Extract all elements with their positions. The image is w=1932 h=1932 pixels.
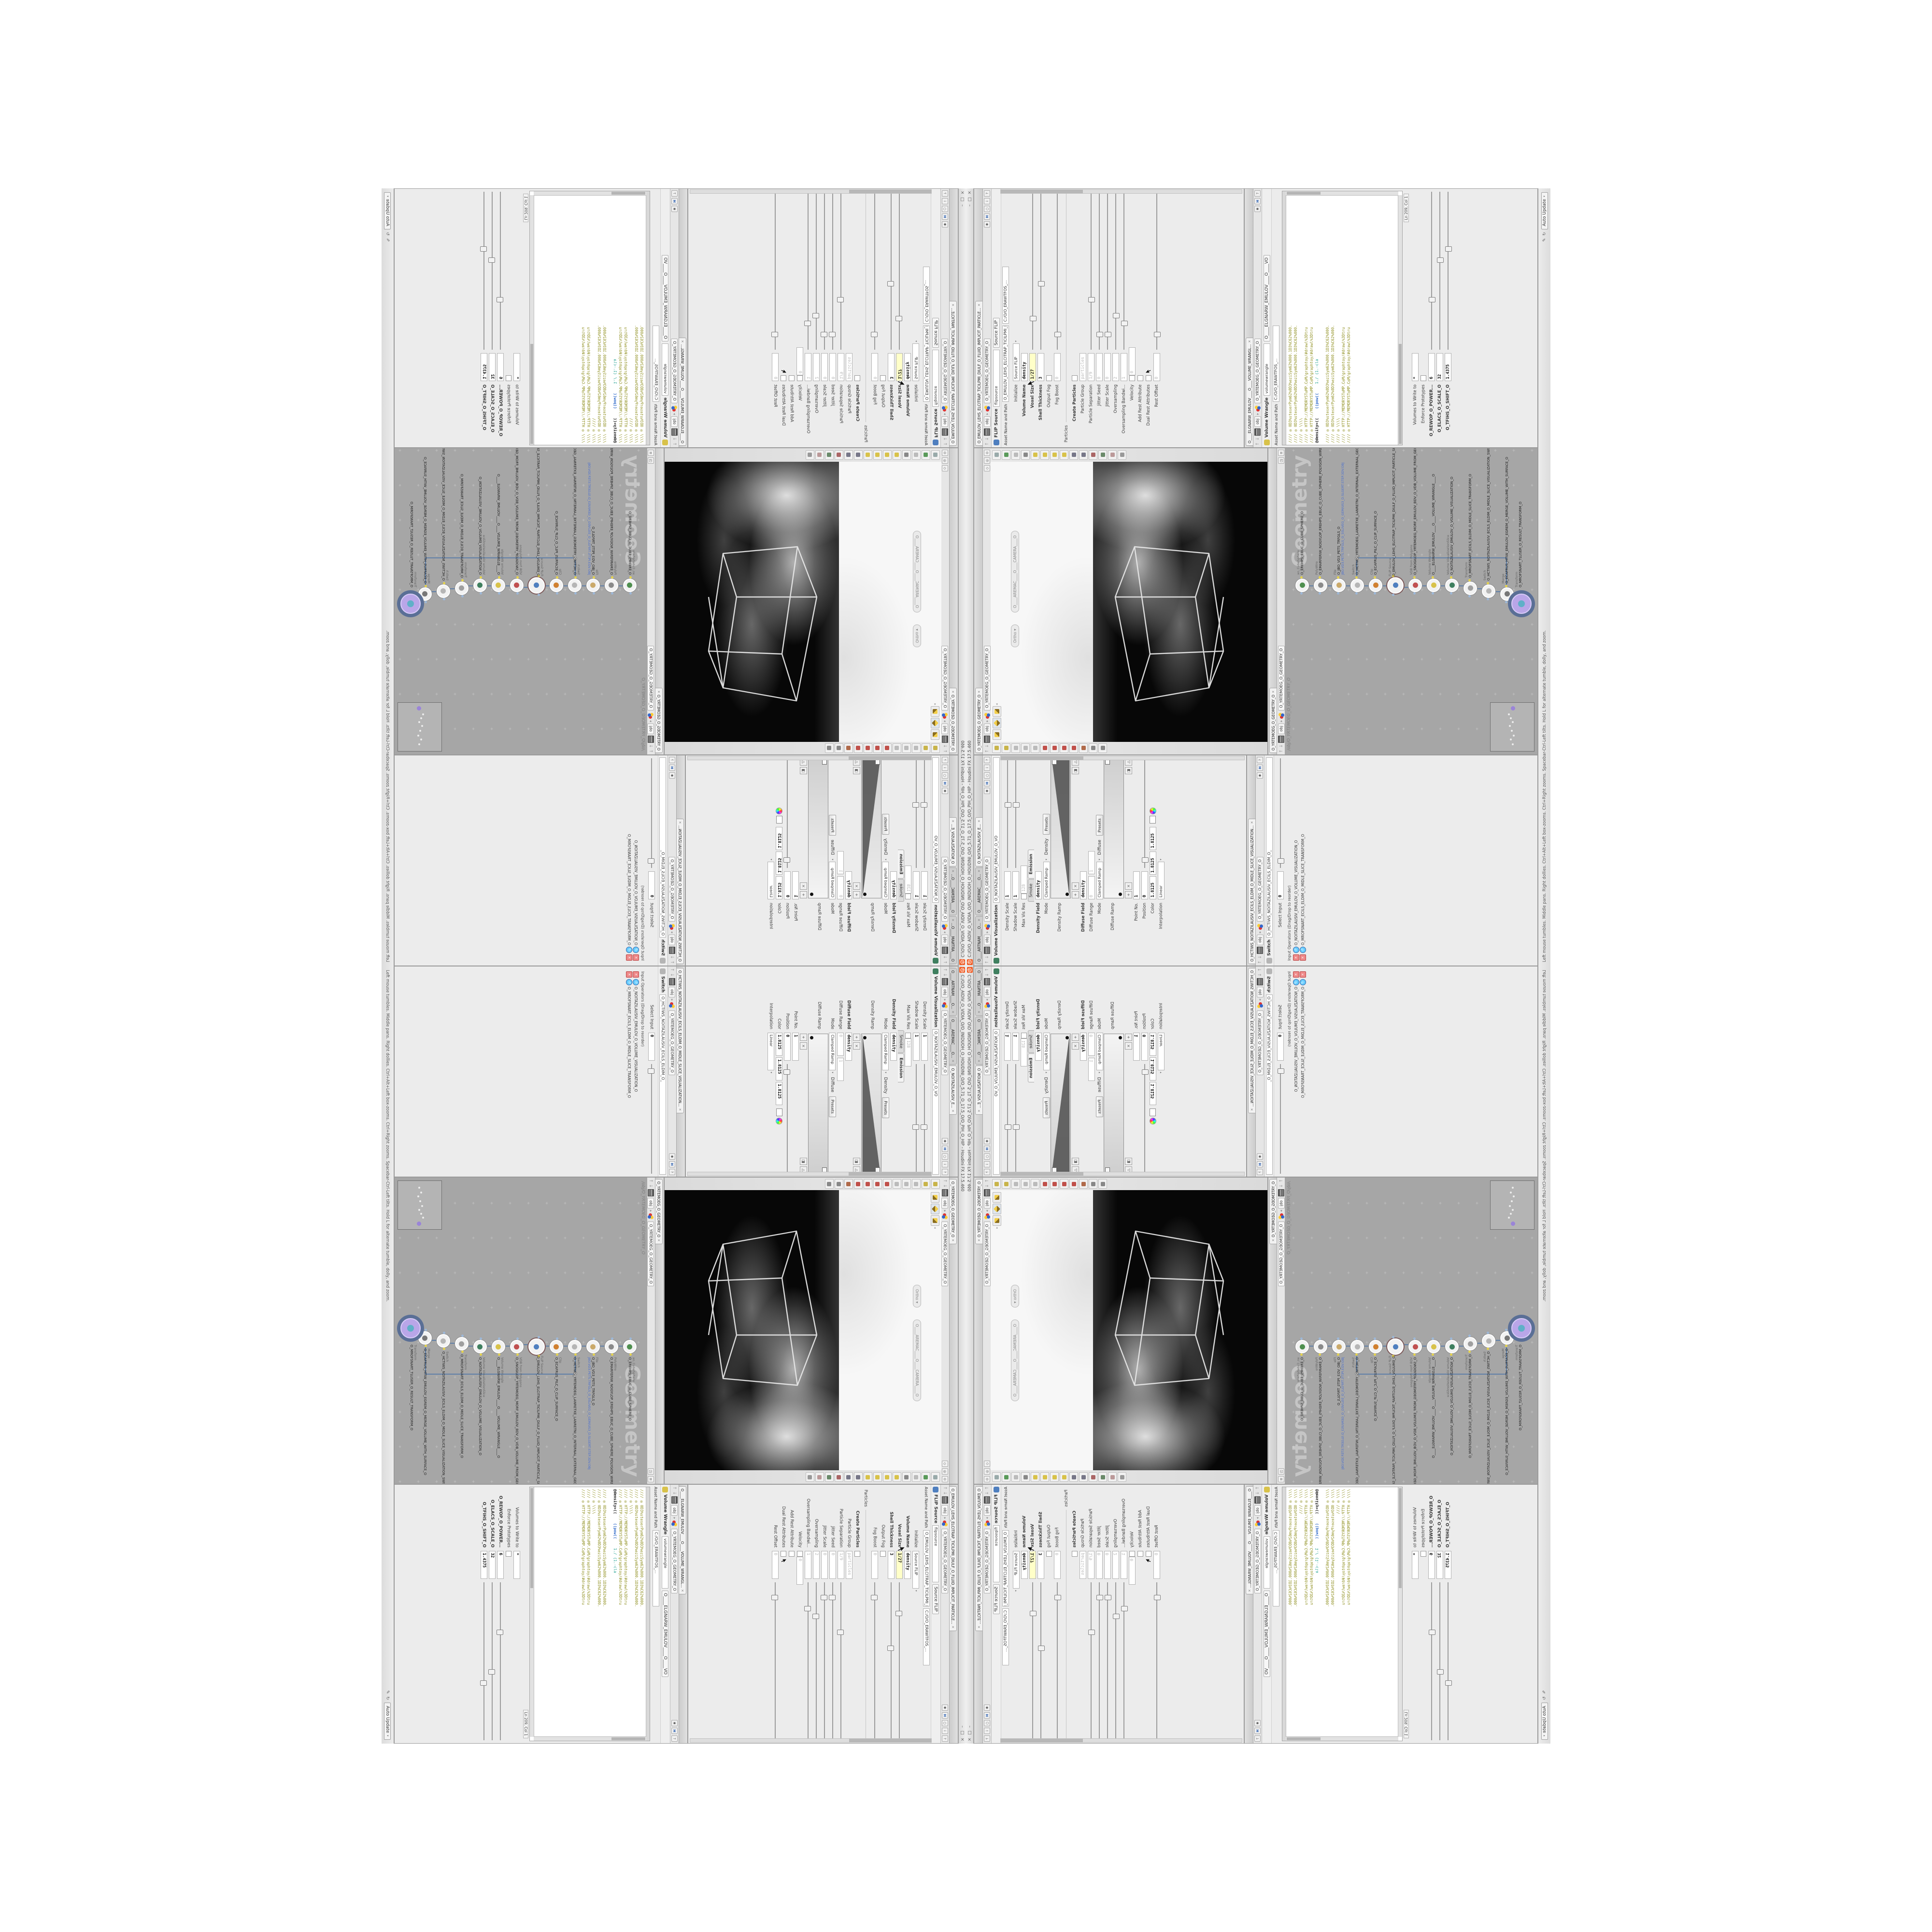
slider-handle[interactable] — [1429, 1630, 1435, 1635]
asset-path-field[interactable]: C:/O/O_ERAWTFOS_... — [923, 267, 930, 324]
path-context-chip[interactable]: obj — [1254, 416, 1261, 427]
gear-icon[interactable]: ✱ — [1254, 206, 1261, 212]
recook-icon[interactable]: ↻ — [1542, 232, 1547, 236]
param-value-field[interactable]: 0 — [772, 353, 779, 381]
asset-name-field[interactable]: O_EMULOV_LEHS_ELCITRAP_TICILPMI_DI — [923, 1530, 930, 1606]
path-node-chip[interactable]: O_YRTEMOEG_O_GEOMETRY_O — [984, 1529, 991, 1593]
pane-scrollbar[interactable] — [687, 756, 932, 760]
slider-handle[interactable] — [1113, 1614, 1120, 1619]
slider-handle[interactable] — [1088, 1630, 1095, 1635]
tab-visualization[interactable]: O_NOITAZILAUSIV_E...× — [975, 1065, 982, 1114]
param-value-field[interactable]: 0 — [830, 1551, 837, 1579]
hand-tool-icon[interactable] — [1002, 1179, 1010, 1189]
param-slider[interactable] — [822, 192, 828, 350]
asset-path-field[interactable]: C:/O/O_ERAWTFOS_... — [1002, 1608, 1009, 1665]
network-canvas[interactable]: + + + + + + + + + + + + + + + + + + + + … — [395, 1178, 647, 1484]
dropdown-value[interactable]: Linear — [768, 1033, 775, 1070]
param-slider[interactable] — [498, 192, 504, 350]
ramp-point-handle[interactable] — [1065, 892, 1069, 896]
wand-tool-icon[interactable] — [1118, 1472, 1126, 1482]
network-canvas[interactable]: + + + + + + + + + + + + + + + + + + + + … — [395, 448, 647, 754]
tab-flip-source[interactable]: O_EMULOV_LEHS_ELCITRAP_TICILPMI_DIULF_O_… — [950, 1486, 957, 1631]
slider-handle[interactable] — [1437, 257, 1444, 263]
target-icon[interactable]: ◎ — [984, 1468, 990, 1475]
dropdown-value[interactable]: Clamped Ramp — [882, 1033, 889, 1070]
close-button[interactable]: × — [960, 191, 965, 195]
param-dropdown[interactable]: Clamped Ramp▾ — [1096, 859, 1103, 899]
slider-handle[interactable] — [805, 1606, 811, 1611]
snap-magnet-prim-icon[interactable] — [1060, 1179, 1068, 1189]
network-node[interactable]: VDB from PolygonsO_SNOGILOP_YRTEMOEG_MOR… — [1408, 579, 1422, 592]
add-point-icon[interactable]: + — [1125, 1034, 1132, 1041]
tab-scene-view[interactable]: O_YRTEMOEG_O_GEOMETRY_O× — [975, 688, 982, 753]
param-value-field[interactable]: 0 — [1096, 353, 1103, 381]
nav-up-icon[interactable]: ↑ — [943, 749, 948, 753]
param-slider[interactable] — [498, 1582, 504, 1740]
color-component-field[interactable]: 1.8125 — [776, 876, 783, 899]
target-icon[interactable]: ◎ — [942, 1468, 948, 1475]
color-component-field[interactable]: 1.8125 — [776, 852, 783, 875]
path-node-chip[interactable]: O_YRTEMOEG_O_GEOMETRY_O — [942, 646, 949, 710]
pin-icon[interactable]: ⊙ — [984, 450, 990, 456]
param-slider[interactable] — [490, 192, 496, 350]
checkbox[interactable] — [1072, 1551, 1078, 1557]
node-display-flag[interactable] — [1355, 576, 1358, 579]
slider-handle[interactable] — [813, 313, 820, 318]
info-icon[interactable]: i — [942, 765, 948, 771]
node-input-flag[interactable] — [1374, 1337, 1376, 1340]
param-value-field[interactable]: 6 — [1428, 353, 1435, 381]
network-node-selected[interactable]: TransformO_MROFSNART_TLUSER_O_RESULT_TRA… — [397, 1315, 424, 1342]
add-point-icon[interactable]: + — [1072, 891, 1079, 898]
delete-input-icon[interactable]: × — [626, 971, 633, 978]
nav-down-icon[interactable]: ↓ — [670, 973, 675, 977]
node-input-flag[interactable] — [611, 592, 613, 595]
param-value-field[interactable]: 1 — [1088, 851, 1095, 874]
nav-up-icon[interactable]: ↑ — [943, 442, 948, 446]
auto-update-selector[interactable]: Auto Update ▾ — [1541, 192, 1548, 229]
tab-close-icon[interactable]: × — [951, 919, 955, 922]
param-value-field[interactable]: 0 — [784, 871, 791, 899]
help-icon[interactable]: ? — [1254, 190, 1261, 197]
param-value-field[interactable]: 1 — [1004, 1033, 1011, 1061]
houdini-h-icon[interactable]: H — [1257, 765, 1263, 771]
minimize-button[interactable]: – — [967, 204, 972, 207]
point-light-icon[interactable] — [1050, 1472, 1059, 1482]
sun-light-icon[interactable] — [1040, 1472, 1049, 1482]
checkbox[interactable] — [506, 1551, 512, 1557]
slider-handle[interactable] — [838, 1630, 844, 1635]
path-context-chip[interactable]: obj — [1257, 935, 1264, 945]
param-value-field[interactable]: 0 — [1129, 1557, 1136, 1585]
tab-network-editor[interactable]: O_YRTEMOEG_O_GEOMETRY_O× — [655, 1179, 663, 1244]
select-arrow-icon[interactable] — [931, 743, 940, 753]
dome-light-icon[interactable] — [1031, 1472, 1039, 1482]
slider-handle[interactable] — [1429, 297, 1435, 302]
ramp-expand-icon[interactable]: ◨ — [1125, 767, 1132, 774]
pane-scrollbar[interactable] — [1000, 189, 1242, 194]
point-light-icon[interactable] — [873, 450, 882, 460]
param-slider[interactable] — [1121, 192, 1127, 350]
param-value-field[interactable]: 1/27 — [896, 353, 903, 381]
nav-down-icon[interactable]: ↓ — [670, 955, 675, 959]
slider-handle[interactable] — [1154, 1595, 1161, 1600]
tab-volume-wrangle[interactable]: O____ELGNARW_EMULOV____O____VOLUME_WRANG… — [679, 338, 686, 446]
node-name-field[interactable]: flipsource — [933, 1525, 939, 1582]
sky-bulb-icon[interactable] — [1060, 450, 1068, 460]
slider-handle[interactable] — [648, 1068, 655, 1074]
param-value-field[interactable]: 1 — [1012, 871, 1019, 899]
param-value-field[interactable]: 3 — [1037, 1551, 1044, 1579]
nav-down-icon[interactable]: ↓ — [985, 1492, 990, 1495]
tab-camera[interactable]: O____AREMAC____O...× — [975, 867, 982, 915]
input-operator-row[interactable]: × ↺ O_MROFSNART_ECILS_ELDIM_O_MIDLE_SLIC… — [626, 755, 633, 961]
node-input-flag[interactable] — [1468, 595, 1471, 597]
checkbox[interactable] — [855, 1551, 861, 1557]
param-value-field[interactable]: particles — [846, 353, 853, 381]
sphere-toggle-icon[interactable] — [902, 1472, 911, 1482]
slider-handle[interactable] — [1005, 1124, 1011, 1130]
reorder-input-icon[interactable]: ↺ — [1293, 979, 1299, 985]
align-tool-icon[interactable] — [1079, 1179, 1088, 1189]
param-value-field[interactable]: 1 — [1088, 1058, 1095, 1081]
tab-smoke[interactable]: Smoke — [898, 1030, 904, 1053]
nav-down-icon[interactable]: ↓ — [943, 744, 948, 748]
delete-point-icon[interactable]: × — [1072, 1042, 1079, 1050]
slider-handle[interactable] — [1096, 1595, 1103, 1600]
param-value-field[interactable]: 0 — [872, 1551, 879, 1579]
path-node-chip[interactable]: O_YRTEMOEG_O_GEOMETRY_O — [648, 1222, 654, 1286]
param-value-field[interactable]: 1 — [1121, 353, 1127, 381]
node-input-flag[interactable] — [1413, 1337, 1416, 1340]
tab-close-icon[interactable]: × — [678, 1108, 682, 1111]
nav-up-icon[interactable]: ↑ — [1279, 1179, 1284, 1183]
slider-handle[interactable] — [1013, 1124, 1020, 1130]
param-slider[interactable] — [1113, 192, 1119, 350]
pane-expand-icon[interactable]: ◳ — [648, 457, 654, 464]
path-context-chip[interactable]: obj — [671, 1505, 678, 1516]
asset-path-field[interactable]: C:/O/O_ERAWTFOS_... — [653, 326, 659, 402]
param-dropdown[interactable]: Source FLIP▾ — [913, 341, 920, 381]
tab-network-editor[interactable]: O_YRTEMOEG_O_GEOMETRY_O× — [1269, 1179, 1277, 1244]
param-value-field[interactable]: 0 — [797, 1557, 804, 1585]
checkbox[interactable] — [1146, 375, 1151, 381]
param-value-field[interactable]: 0 — [1054, 353, 1061, 381]
checkbox[interactable] — [1421, 1551, 1426, 1557]
param-value-field[interactable]: 0 — [830, 353, 837, 381]
houdini-h-icon[interactable]: H — [671, 198, 678, 204]
checkbox[interactable] — [1021, 894, 1027, 899]
path-context-chip[interactable]: obj — [942, 416, 949, 427]
node-display-flag[interactable] — [1374, 1353, 1376, 1356]
network-node-selected[interactable]: TransformO_MROFSNART_TLUSER_O_RESULT_TRA… — [397, 590, 424, 617]
slider-handle[interactable] — [1121, 321, 1128, 326]
network-node[interactable]: TransformO_MROFSNART_ECILS_ELDIM_O_MIDLE… — [455, 1337, 469, 1350]
help-icon[interactable]: ? — [669, 1169, 675, 1175]
network-node[interactable]: VDB from PolygonsO_SNOGILOP_YRTEMOEG_MOR… — [510, 1340, 524, 1353]
node-input-flag[interactable] — [461, 595, 464, 597]
presets-button[interactable]: Presets — [1043, 1097, 1050, 1118]
flag-display-icon[interactable] — [815, 1472, 824, 1482]
close-button[interactable]: × — [960, 1737, 965, 1741]
param-value-field[interactable]: 0 — [1088, 876, 1095, 899]
node-display-flag[interactable] — [1450, 1353, 1452, 1356]
delete-input-icon[interactable]: × — [633, 954, 639, 961]
dropdown-value[interactable]: Linear — [1158, 1033, 1165, 1070]
code-editor-scrollbar-right[interactable] — [534, 1736, 646, 1741]
color-swatch[interactable] — [776, 816, 782, 824]
slider-handle[interactable] — [497, 1630, 504, 1635]
node-input-flag[interactable] — [516, 1337, 519, 1340]
search-icon[interactable]: ○ — [942, 206, 948, 212]
search-icon[interactable]: ○ — [942, 1153, 948, 1160]
param-dropdown[interactable]: Clamped Ramp▾ — [1043, 1033, 1050, 1073]
node-display-flag[interactable] — [480, 576, 482, 579]
nav-up-icon[interactable]: ↑ — [1255, 442, 1260, 446]
dome-light-icon[interactable] — [893, 450, 901, 460]
construction-plane-icon[interactable] — [835, 1179, 843, 1189]
floor-grid-icon[interactable] — [912, 1472, 921, 1482]
param-value-field[interactable]: 3 — [1037, 353, 1044, 381]
slider-handle[interactable] — [1005, 802, 1011, 808]
viewport-render-area[interactable]: ◂ Ortho ▾ O____AREMAC____O____CAMERA____… — [665, 462, 941, 742]
node-name-field[interactable]: flipsource — [993, 1525, 1000, 1582]
slider-handle[interactable] — [821, 1595, 828, 1600]
param-slider[interactable] — [1429, 192, 1435, 350]
slider-handle[interactable] — [1142, 1069, 1149, 1075]
param-value-field[interactable]: 1 — [1012, 1033, 1019, 1061]
param-slider[interactable] — [1154, 192, 1160, 350]
select-arrow-icon[interactable] — [992, 1179, 1001, 1189]
tab-close-icon[interactable]: × — [951, 1060, 955, 1063]
pin-icon[interactable]: ⊙ — [942, 450, 948, 456]
node-input-flag[interactable] — [1392, 1336, 1394, 1338]
slider-handle[interactable] — [1054, 332, 1061, 337]
select-arrow-icon[interactable] — [992, 743, 1001, 753]
floor-grid-icon[interactable] — [1011, 450, 1020, 460]
path-node-chip[interactable]: O_YRTEMOEG_O_GEOMETRY_O — [648, 646, 654, 710]
color-wheel-icon[interactable] — [1150, 808, 1156, 814]
node-name-field[interactable]: volumewrangle — [1264, 343, 1270, 396]
ramp-widget[interactable]: +×◨△ — [1051, 758, 1079, 898]
nav-down-icon[interactable]: ↓ — [1255, 437, 1260, 441]
slider-handle[interactable] — [497, 297, 504, 302]
asset-name-field[interactable]: O_EMULOV_LEHS_ELCITRAP_TICILPMI_DI — [923, 326, 930, 402]
node-display-flag[interactable] — [629, 576, 632, 579]
gear-icon[interactable]: ✱ — [671, 1720, 678, 1726]
dropdown-value[interactable]: Source FLIP — [1013, 343, 1020, 381]
search-icon[interactable]: ○ — [984, 1720, 990, 1726]
param-value-field[interactable]: * — [1412, 1551, 1419, 1579]
node-input-flag[interactable] — [1432, 1337, 1434, 1340]
node-input-flag[interactable] — [556, 592, 558, 595]
box-select-icon[interactable] — [912, 1179, 921, 1189]
globe-env-icon[interactable] — [1098, 450, 1107, 460]
param-slider[interactable] — [1445, 192, 1451, 350]
pane-menu-icon[interactable]: ≡ — [1278, 450, 1284, 456]
tab-volume-wrangle[interactable]: O____ELGNARW_EMULOV____O____VOLUME_WRANG… — [1246, 338, 1253, 446]
path-node-chip[interactable]: O_YRTEMOEG_O_GEOMETRY_O — [1257, 1010, 1264, 1075]
tab-close-icon[interactable]: × — [951, 303, 955, 306]
scene-green-icon[interactable] — [1002, 450, 1010, 460]
node-display-flag[interactable] — [629, 1353, 632, 1356]
node-input-flag[interactable] — [516, 592, 519, 595]
shade-smooth-icon[interactable] — [993, 729, 1001, 740]
delete-point-icon[interactable]: × — [853, 1042, 860, 1050]
param-slider[interactable] — [830, 192, 836, 350]
ramp-widget[interactable]: +×◨△ — [1104, 758, 1132, 898]
slider-handle[interactable] — [648, 858, 655, 864]
param-dropdown[interactable]: Clamped Ramp▾ — [829, 1033, 836, 1073]
minimize-button[interactable]: – — [960, 204, 965, 207]
help-icon[interactable]: ? — [1254, 1735, 1261, 1742]
tab-close-icon[interactable]: × — [1271, 1239, 1275, 1242]
path-context-chip[interactable]: obj — [648, 1198, 654, 1208]
slider-handle[interactable] — [821, 332, 828, 337]
color-swatch[interactable] — [1150, 816, 1156, 824]
node-input-flag[interactable] — [1505, 1329, 1507, 1331]
node-input-flag[interactable] — [593, 1337, 595, 1340]
ramp-widget[interactable]: +×◨△ — [1051, 1034, 1079, 1174]
network-node[interactable]: SwitchO_HCTIWS_YRTEMOEG_LANRETXE_LANRETN… — [568, 579, 582, 592]
hand-tool-icon[interactable] — [922, 1179, 930, 1189]
param-value-field[interactable]: 0 — [838, 876, 844, 899]
pane-scrollbar[interactable] — [1000, 1738, 1242, 1743]
param-slider[interactable] — [1013, 1064, 1019, 1174]
nav-up-icon[interactable]: ↑ — [649, 749, 653, 753]
delete-input-icon[interactable]: × — [1293, 971, 1299, 978]
presets-button[interactable]: Presets — [1096, 1096, 1103, 1117]
lasso-select-icon[interactable] — [902, 743, 911, 753]
node-input-flag[interactable] — [425, 1329, 427, 1331]
sky-bulb-icon[interactable] — [864, 450, 872, 460]
node-name-field[interactable]: flipsource — [993, 350, 1000, 407]
path-node-chip[interactable]: O_YRTEMOEG_O_GEOMETRY_O — [984, 646, 991, 710]
checkbox[interactable] — [1146, 1551, 1151, 1557]
pane-menu-icon[interactable]: ≡ — [648, 450, 654, 456]
snap-magnet-prim-icon[interactable] — [864, 1179, 872, 1189]
path-node-chip[interactable]: O_YRTEMOEG_O_GEOMETRY_O — [671, 339, 678, 403]
delete-point-icon[interactable]: × — [853, 882, 860, 890]
gear-icon[interactable]: ✱ — [671, 206, 678, 212]
node-input-flag[interactable] — [480, 1337, 482, 1340]
node-display-flag[interactable] — [1468, 579, 1471, 582]
gear-icon[interactable]: ✱ — [942, 1705, 948, 1711]
param-value-field[interactable]: density — [905, 353, 911, 381]
close-button[interactable]: × — [967, 1737, 972, 1741]
param-slider[interactable] — [1445, 1582, 1451, 1740]
vex-code-editor[interactable]: //// ◎ 0D3%steserPym62%0D3%eziSym62%000.… — [1282, 191, 1403, 445]
param-value-field[interactable]: 0 — [797, 347, 804, 375]
param-value-field[interactable]: 1 — [1004, 871, 1011, 899]
camera-icon[interactable] — [1079, 450, 1088, 460]
param-slider[interactable] — [889, 1582, 895, 1740]
globe-env-icon[interactable] — [825, 450, 834, 460]
info-icon[interactable]: i — [984, 765, 990, 771]
tab-close-icon[interactable]: × — [1248, 340, 1251, 343]
network-node[interactable]: VDB from PolygonsO_SNOGILOP_YRTEMOEG_MOR… — [1408, 1340, 1422, 1353]
network-node[interactable]: SwitchO_HCTIWS_NOITAZILAUSIV_ECILS_ELDIM… — [437, 1334, 450, 1348]
node-input-flag[interactable] — [1392, 594, 1394, 596]
search-icon[interactable]: ○ — [984, 772, 990, 779]
path-context-chip[interactable]: obj — [669, 935, 676, 945]
input-operator-row[interactable]: × ↺ O_NOITAZILAUSIV_EMULOV_O_VOLUME_VISU… — [1293, 971, 1299, 1177]
network-minimap[interactable] — [398, 1180, 442, 1230]
dome-light-icon[interactable] — [1031, 450, 1039, 460]
tab-mantra[interactable]: O____ARTNAM____O...× — [950, 916, 957, 964]
path-node-chip[interactable]: O_YRTEMOEG_O_GEOMETRY_O — [1278, 1222, 1285, 1286]
slider-handle[interactable] — [1096, 332, 1103, 337]
code-editor-scrollbar-top[interactable] — [646, 191, 650, 445]
target-camera-icon[interactable] — [1069, 1472, 1078, 1482]
help-icon[interactable]: ? — [1257, 757, 1263, 763]
path-context-chip[interactable]: obj — [648, 724, 654, 734]
network-node[interactable]: FLIP SourceO_EMULOV_LEHS_ELCITRAP_TICILP… — [1387, 1338, 1404, 1355]
info-icon[interactable]: i — [984, 198, 990, 204]
tab-close-icon[interactable]: × — [977, 919, 981, 922]
network-node[interactable]: Volume VisualizationSliceO_NOITAZILAUSIV… — [1445, 579, 1459, 592]
slider-handle[interactable] — [813, 1614, 820, 1619]
nav-down-icon[interactable]: ↓ — [672, 1492, 677, 1495]
pane-scrollbar[interactable] — [690, 1738, 932, 1743]
clapper-render-icon[interactable] — [1089, 450, 1097, 460]
param-value-field[interactable]: 3 — [888, 1551, 895, 1579]
asset-path-field[interactable]: C:/O/O_ERAWTFOS_... — [1273, 326, 1279, 402]
param-value-field[interactable]: density — [1080, 871, 1087, 899]
tab-camera[interactable]: O____AREMAC____O...× — [950, 867, 957, 915]
node-input-flag[interactable] — [593, 592, 595, 595]
flag-display-icon[interactable] — [1108, 450, 1117, 460]
tab-volume-wrangle[interactable]: O____ELGNARW_EMULOV____O____VOLUME_WRANG… — [679, 1486, 686, 1594]
checkbox[interactable] — [1046, 375, 1052, 381]
tab-network-editor[interactable]: O_YRTEMOEG_O_GEOMETRY_O× — [655, 688, 663, 753]
param-slider[interactable] — [889, 192, 895, 350]
network-node[interactable]: FLIP SourceO_EMULOV_LEHS_ELCITRAP_TICILP… — [528, 1338, 545, 1355]
param-value-field[interactable]: 128 — [1021, 1038, 1027, 1066]
sky-bulb-icon[interactable] — [1060, 1472, 1068, 1482]
slider-handle[interactable] — [913, 802, 920, 808]
asset-chip[interactable]: O____ELGNARW_EMULOV____O____VO — [662, 255, 669, 341]
brush-select-icon[interactable] — [893, 1179, 901, 1189]
node-input-flag[interactable] — [1374, 592, 1376, 595]
asset-path-field[interactable]: C:/O/O_ERAWTFOS_... — [653, 1530, 659, 1606]
param-value-field[interactable]: density — [1080, 1033, 1087, 1061]
tab-close-icon[interactable]: × — [977, 1060, 981, 1063]
param-value-field[interactable]: density — [905, 1551, 911, 1579]
node-name-field[interactable]: O_NOITAZILAUSIV_EMULOV_O_VO — [933, 757, 939, 903]
node-input-flag[interactable] — [1432, 592, 1434, 595]
nav-down-icon[interactable]: ↓ — [985, 1184, 990, 1188]
network-node[interactable]: FileO_JBO_VD3_PETS_TRFGLS_OJBO.VD3.PETS.… — [586, 1340, 600, 1353]
edit-pencil-icon[interactable]: ✎ — [385, 238, 390, 242]
tab-close-icon[interactable]: × — [681, 340, 684, 343]
param-value-field[interactable]: 0 — [772, 1551, 779, 1579]
nav-up-icon[interactable]: ↑ — [1258, 968, 1263, 972]
reorder-input-icon[interactable]: ↺ — [633, 947, 639, 953]
slider-handle[interactable] — [896, 1611, 903, 1616]
node-display-flag[interactable] — [480, 1353, 482, 1356]
color-component-field[interactable]: 1.8125 — [776, 827, 783, 850]
box-select-icon[interactable] — [1011, 743, 1020, 753]
nav-down-icon[interactable]: ↓ — [649, 1184, 653, 1188]
asset-path-field[interactable]: C:/O/O_ERAWTFOS_... — [923, 1608, 930, 1665]
node-input-flag[interactable] — [1337, 1337, 1339, 1340]
param-slider[interactable] — [914, 758, 920, 868]
color-component-field[interactable]: 1.8125 — [1150, 852, 1156, 875]
ramp-widget[interactable]: +×◨△ — [800, 758, 828, 898]
checkbox[interactable] — [1137, 375, 1143, 381]
tab-emission[interactable]: Emission — [1028, 850, 1034, 879]
